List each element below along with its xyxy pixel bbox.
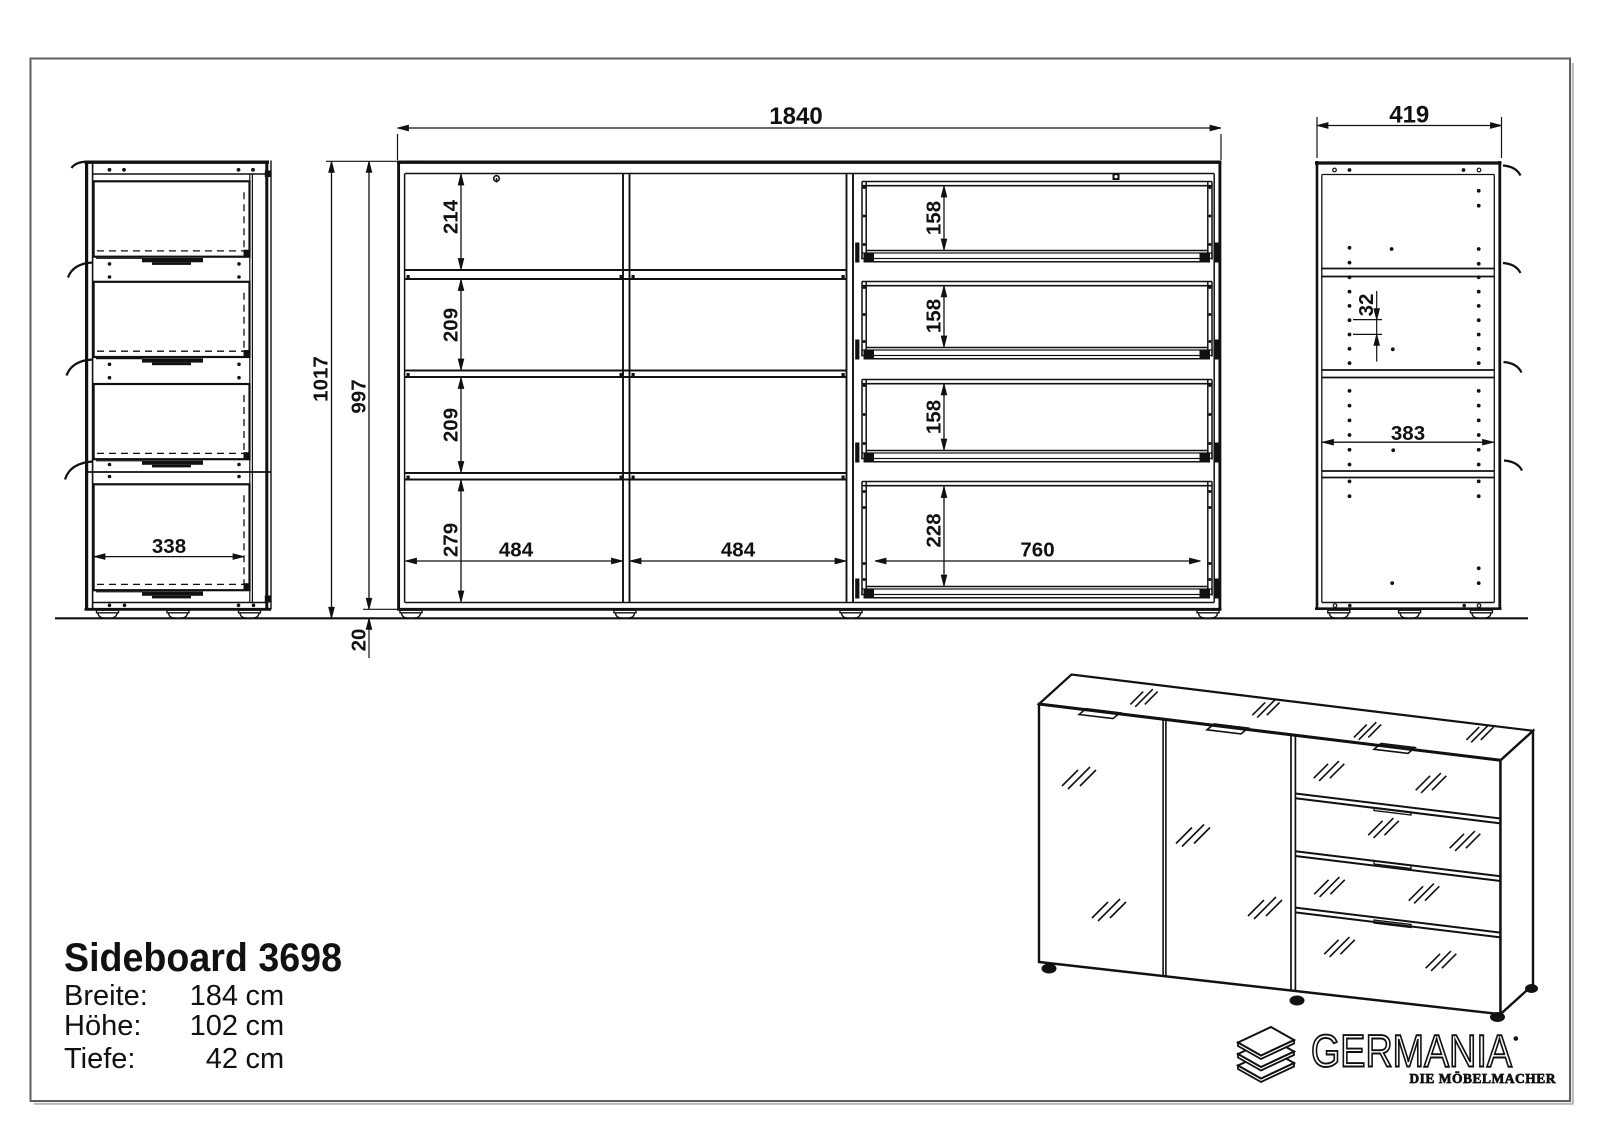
svg-text:209: 209 [440,308,463,342]
svg-text:214: 214 [440,199,463,234]
svg-text:32: 32 [1355,294,1378,317]
svg-text:484: 484 [499,539,534,562]
svg-text:209: 209 [440,408,463,442]
svg-text:158: 158 [923,400,946,434]
svg-text:Höhe:: Höhe: [64,1010,141,1042]
svg-text:997: 997 [348,379,371,413]
svg-text:1840: 1840 [769,103,822,130]
svg-text:Breite:: Breite: [64,980,148,1012]
svg-text:cm: cm [246,980,285,1012]
svg-text:760: 760 [1020,539,1054,562]
svg-text:338: 338 [152,535,186,558]
svg-text:cm: cm [246,1010,285,1042]
svg-text:DIE MÖBELMACHER: DIE MÖBELMACHER [1409,1071,1556,1086]
svg-text:484: 484 [721,539,756,562]
svg-text:158: 158 [923,201,946,235]
svg-text:184: 184 [190,980,238,1012]
svg-text:228: 228 [923,513,946,547]
svg-text:279: 279 [440,523,463,557]
svg-text:Tiefe:: Tiefe: [64,1043,135,1075]
svg-text:Sideboard 3698: Sideboard 3698 [64,936,342,980]
svg-text:GERMANIA: GERMANIA [1311,1026,1512,1077]
svg-text:419: 419 [1389,102,1429,129]
svg-text:1017: 1017 [309,356,332,402]
svg-text:42: 42 [206,1043,238,1075]
svg-text:383: 383 [1391,422,1425,445]
svg-text:20: 20 [348,629,371,652]
svg-text:158: 158 [923,299,946,333]
svg-text:cm: cm [246,1043,285,1075]
svg-text:102: 102 [190,1010,238,1042]
